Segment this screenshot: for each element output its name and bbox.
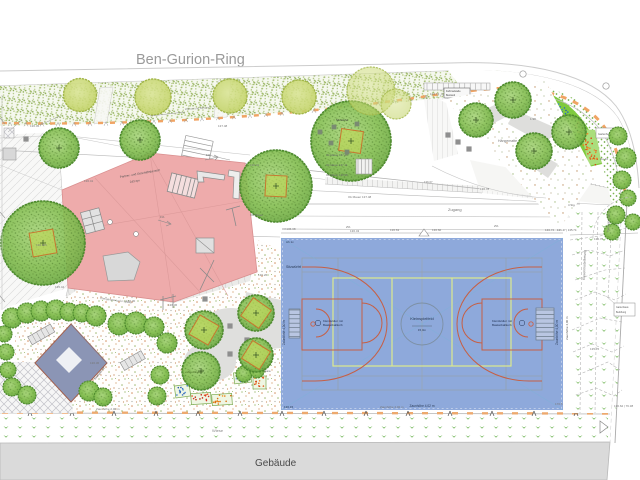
svg-text:135.76: 135.76 bbox=[590, 347, 600, 351]
svg-text:Wiese: Wiese bbox=[212, 428, 224, 433]
svg-text:Kleinspielfeld: Kleinspielfeld bbox=[410, 316, 434, 321]
svg-text:135.44: 135.44 bbox=[55, 285, 65, 289]
svg-text:136.78: 136.78 bbox=[480, 187, 490, 191]
svg-text:Zaunhöhe 2,00 m: Zaunhöhe 2,00 m bbox=[96, 407, 120, 411]
svg-text:136.36: 136.36 bbox=[168, 303, 178, 307]
svg-text:Zaunhöhe 4,02 m: Zaunhöhe 4,02 m bbox=[380, 405, 404, 409]
svg-text:136.365: 136.365 bbox=[36, 243, 47, 247]
svg-text:137.48: 137.48 bbox=[218, 124, 228, 128]
svg-text:2%: 2% bbox=[494, 224, 499, 228]
svg-text:Zaunhöhe 4,00 m: Zaunhöhe 4,00 m bbox=[282, 320, 286, 345]
svg-text:136.36: 136.36 bbox=[90, 361, 100, 365]
svg-text:136.30: 136.30 bbox=[126, 299, 136, 303]
svg-text:136.47 | 135.74: 136.47 | 135.74 bbox=[557, 228, 577, 232]
svg-text:Basketballkorb: Basketballkorb bbox=[323, 323, 343, 327]
svg-text:136.41: 136.41 bbox=[250, 163, 260, 167]
svg-text:136.41: 136.41 bbox=[84, 179, 94, 183]
svg-text:Zaunhöhe 4,02 m: Zaunhöhe 4,02 m bbox=[410, 404, 435, 408]
svg-text:Gartenhaus: Gartenhaus bbox=[616, 306, 629, 309]
svg-text:Bestand: Bestand bbox=[446, 94, 456, 97]
svg-text:136.07: 136.07 bbox=[424, 180, 433, 184]
svg-text:136.43: 136.43 bbox=[350, 229, 360, 233]
svg-text:Sitzwürfel: Sitzwürfel bbox=[286, 265, 301, 269]
svg-text:1.98: 1.98 bbox=[530, 117, 536, 121]
svg-text:Ok Mauer 137.48: Ok Mauer 137.48 bbox=[348, 195, 372, 199]
svg-text:Ben-Gurion-Ring: Ben-Gurion-Ring bbox=[136, 52, 245, 68]
svg-text:Ok Mauer 137.48: Ok Mauer 137.48 bbox=[326, 153, 348, 157]
svg-text:Zaunhöhe 4,00 m: Zaunhöhe 4,00 m bbox=[555, 320, 559, 345]
svg-text:Basketballkorb: Basketballkorb bbox=[492, 323, 512, 327]
svg-text:Ok Mauer 136.98: Ok Mauer 136.98 bbox=[326, 173, 348, 177]
svg-text:136.62 | 76.38: 136.62 | 76.38 bbox=[614, 404, 633, 408]
svg-text:Hängematte: Hängematte bbox=[498, 139, 517, 143]
svg-text:136.60: 136.60 bbox=[432, 228, 442, 232]
svg-text:Fahrradstelle: Fahrradstelle bbox=[446, 90, 461, 93]
svg-text:Gebäude: Gebäude bbox=[255, 458, 297, 469]
svg-text:Ah 1v: Ah 1v bbox=[286, 240, 294, 244]
svg-text:4 Stg.: 4 Stg. bbox=[568, 203, 576, 207]
svg-text:15,0m: 15,0m bbox=[418, 328, 427, 332]
svg-text:136.15: 136.15 bbox=[284, 405, 294, 409]
svg-text:Ra 46: Ra 46 bbox=[600, 157, 608, 161]
svg-text:Ok Mauer 137.11: Ok Mauer 137.11 bbox=[326, 163, 348, 167]
svg-text:Sitzwürfel: Sitzwürfel bbox=[336, 118, 349, 122]
svg-text:136.45: 136.45 bbox=[30, 124, 40, 128]
svg-text:+ Ahornbaum: + Ahornbaum bbox=[185, 370, 203, 374]
svg-text:OK136.38: OK136.38 bbox=[282, 227, 296, 231]
svg-text:136.63: 136.63 bbox=[390, 228, 400, 232]
svg-text:176.5: 176.5 bbox=[555, 402, 563, 406]
svg-text:136.74: 136.74 bbox=[545, 228, 555, 232]
svg-text:1%: 1% bbox=[160, 215, 165, 219]
svg-text:Zaunhöhe 4,00 m: Zaunhöhe 4,00 m bbox=[565, 316, 569, 340]
svg-text:135.76: 135.76 bbox=[594, 237, 604, 241]
svg-text:134.74: 134.74 bbox=[430, 92, 440, 96]
svg-text:Ok Mauer: Ok Mauer bbox=[250, 213, 263, 217]
svg-text:Belüftung: Belüftung bbox=[616, 311, 627, 314]
svg-text:Zugang: Zugang bbox=[448, 207, 462, 212]
svg-text:136.26: 136.26 bbox=[258, 273, 268, 277]
